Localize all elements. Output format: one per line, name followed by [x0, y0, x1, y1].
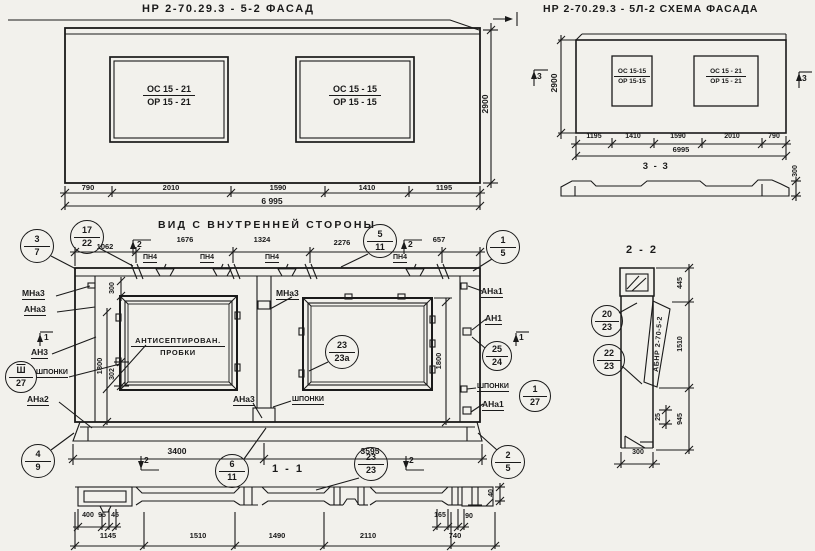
dim-label: 790 — [752, 133, 796, 140]
dim-label: 1145 — [83, 531, 133, 540]
label-an3: АН3 — [31, 347, 48, 359]
antiseptic-plugs-note: АНТИСЕПТИРОВАН. ПРОБКИ — [126, 336, 230, 357]
dim-label: 300 — [622, 449, 654, 456]
section-3-3-title: 3 - 3 — [630, 161, 682, 172]
label-ana2: АНа2 — [27, 394, 49, 406]
facade-linework — [8, 12, 517, 210]
dim-label: 45 — [107, 512, 123, 519]
callout-23-23a: 23 23а — [325, 335, 359, 369]
callout-17-22: 17 22 — [70, 220, 104, 254]
label-mna3: МНа3 — [276, 288, 299, 300]
window-mark-bottom: ОР 15 - 15 — [333, 97, 377, 107]
dim-label: 1800 — [95, 341, 105, 391]
dim-label: 1324 — [237, 235, 287, 244]
callout-bottom: 11 — [367, 242, 393, 253]
callout-bottom: 27 — [523, 397, 547, 408]
dim-label: 25 — [654, 402, 664, 432]
dim-label: 1510 — [173, 531, 223, 540]
label-ana1: АНа1 — [481, 286, 503, 298]
callout-bottom: 22 — [74, 238, 100, 249]
dim-label: 2010 — [146, 183, 196, 192]
window-mark-top: ОС 15 - 15 — [329, 84, 381, 96]
facade-title: НР 2-70.29.3 - 5-2 ФАСАД — [142, 3, 315, 15]
blueprint-canvas: НР 2-70.29.3 - 5-2 ФАСАД ОС 15 - 21 ОР 1… — [0, 0, 815, 551]
callout-bottom: 23 — [597, 361, 621, 372]
label-ana1: АНа1 — [482, 399, 504, 411]
callout-top: 25 — [486, 345, 508, 357]
pn4-label: ПН4 — [200, 254, 214, 263]
dim-label: 1410 — [611, 133, 655, 140]
dim-height-label: 2900 — [549, 58, 559, 108]
window-mark-bottom: ОР 15 - 21 — [147, 97, 191, 107]
section-flag-2: 2 — [137, 239, 142, 249]
label-shponki: ШПОНКИ — [36, 369, 68, 378]
label-shponki: ШПОНКИ — [292, 396, 324, 405]
dim-label: 657 — [417, 235, 461, 244]
callout-20-23: 20 23 — [591, 305, 623, 337]
callout-top: 4 — [25, 450, 51, 462]
dim-label: 300 — [108, 263, 118, 313]
section-flag-2: 2 — [144, 455, 149, 465]
callout-top: 2 — [495, 451, 521, 463]
label-an1: АН1 — [485, 313, 502, 325]
dim-label: 945 — [676, 394, 686, 444]
callout-5-11: 5 11 — [363, 224, 397, 258]
callout-bottom: 24 — [486, 357, 508, 368]
section-flag-3-right: 3 — [802, 73, 807, 83]
facade-window-left-label: ОС 15 - 21 ОР 15 - 21 — [110, 84, 228, 107]
dim-height-label: 2900 — [480, 79, 490, 129]
section-flag-2: 2 — [409, 455, 414, 465]
dim-label: 2276 — [317, 238, 367, 247]
callout-bottom: 9 — [25, 462, 51, 473]
facade-window-right-label: ОС 15 - 15 ОР 15 - 15 — [296, 84, 414, 107]
callout-top: 17 — [74, 226, 100, 238]
dim-label: 1195 — [419, 183, 469, 192]
callout-top: 6 — [219, 460, 245, 472]
dim-label: 1676 — [160, 235, 210, 244]
window-mark-top: ОС 15 - 21 — [143, 84, 195, 96]
callout-top: 23 — [358, 453, 384, 465]
dim-label: 445 — [676, 258, 686, 308]
section-flag-3-left: 3 — [537, 71, 542, 81]
note-line-2: ПРОБКИ — [160, 348, 196, 357]
callout-6-11: 6 11 — [215, 454, 249, 488]
callout-sh-27: Ш 27 — [5, 361, 37, 393]
schema-window-left-label: ОС 15-15 ОР 15-15 — [612, 68, 652, 85]
dim-total-label: 6995 — [659, 145, 703, 154]
dim-total-label: 6 995 — [247, 196, 297, 206]
inner-view-title: ВИД С ВНУТРЕННЕЙ СТОРОНЫ — [158, 219, 376, 231]
schema-linework — [531, 34, 812, 201]
pn4-label: ПН4 — [393, 254, 407, 263]
callout-4-9: 4 9 — [21, 444, 55, 478]
dim-label: 2110 — [343, 531, 393, 540]
callout-top: 3 — [24, 235, 50, 247]
callout-top: 22 — [597, 349, 621, 361]
section-1-1-title: 1 - 1 — [256, 463, 320, 475]
section-2-2-title: 2 - 2 — [617, 244, 667, 256]
callout-bottom: 7 — [24, 247, 50, 258]
callout-22-23: 22 23 — [593, 344, 625, 376]
section-flag-1: 1 — [519, 332, 524, 342]
window-mark-bottom: ОР 15-15 — [618, 78, 646, 85]
window-mark-top: ОС 15-15 — [614, 68, 650, 77]
dim-label: 1490 — [252, 531, 302, 540]
dim-label: 165 — [428, 512, 452, 519]
dim-label: 2010 — [710, 133, 754, 140]
callout-bottom: 23 — [358, 465, 384, 476]
schema-title: НР 2-70.29.3 - 5Л-2 СХЕМА ФАСАДА — [543, 3, 758, 15]
callout-top: 23 — [329, 341, 355, 353]
drawing-linework — [0, 0, 815, 551]
dim-label: 740 — [430, 531, 480, 540]
label-mna3: МНа3 — [22, 288, 45, 300]
label-shponki: ШПОНКИ — [477, 383, 509, 392]
callout-bottom: 5 — [495, 463, 521, 474]
callout-top: 20 — [595, 310, 619, 322]
pn4-label: ПН4 — [265, 254, 279, 263]
schema-window-right-label: ОС 15 - 21 ОР 15 - 21 — [694, 68, 758, 85]
dim-label: 90 — [459, 513, 479, 520]
dim-label: 1510 — [676, 319, 686, 369]
section-flag-2: 2 — [408, 239, 413, 249]
callout-bottom: 23 — [595, 322, 619, 333]
note-line-1: АНТИСЕПТИРОВАН. — [131, 336, 225, 347]
label-ana3: АНа3 — [233, 394, 255, 406]
dim-label: 790 — [63, 183, 113, 192]
dim-label: 40 — [487, 468, 497, 518]
callout-top: 5 — [367, 230, 393, 242]
callout-top: 1 — [490, 236, 516, 248]
dim-label: 1195 — [572, 133, 616, 140]
callout-1-27: 1 27 — [519, 380, 551, 412]
dim-label: 1410 — [342, 183, 392, 192]
dim-label: 302 — [108, 349, 118, 399]
callout-top: Ш — [9, 366, 33, 378]
window-mark-top: ОС 15 - 21 — [706, 68, 746, 77]
callout-1-5: 1 5 — [486, 230, 520, 264]
callout-23-23: 23 23 — [354, 447, 388, 481]
dim-label: 1590 — [656, 133, 700, 140]
dim-depth-label: 300 — [791, 146, 801, 196]
callout-2-5: 2 5 — [491, 445, 525, 479]
callout-bottom: 23а — [329, 353, 355, 364]
callout-bottom: 11 — [219, 472, 245, 483]
callout-bottom: 5 — [490, 248, 516, 259]
dim-label: 1800 — [434, 336, 444, 386]
label-ana3: АНа3 — [24, 304, 46, 316]
callout-bottom: 27 — [9, 378, 33, 389]
callout-25-24: 25 24 — [482, 341, 512, 371]
window-mark-bottom: ОР 15 - 21 — [710, 78, 741, 85]
dim-label: 3400 — [152, 446, 202, 456]
callout-top: 1 — [523, 385, 547, 397]
section-flag-1: 1 — [44, 332, 49, 342]
callout-3-7: 3 7 — [20, 229, 54, 263]
pn4-label: ПН4 — [143, 254, 157, 263]
dim-label: 1590 — [253, 183, 303, 192]
